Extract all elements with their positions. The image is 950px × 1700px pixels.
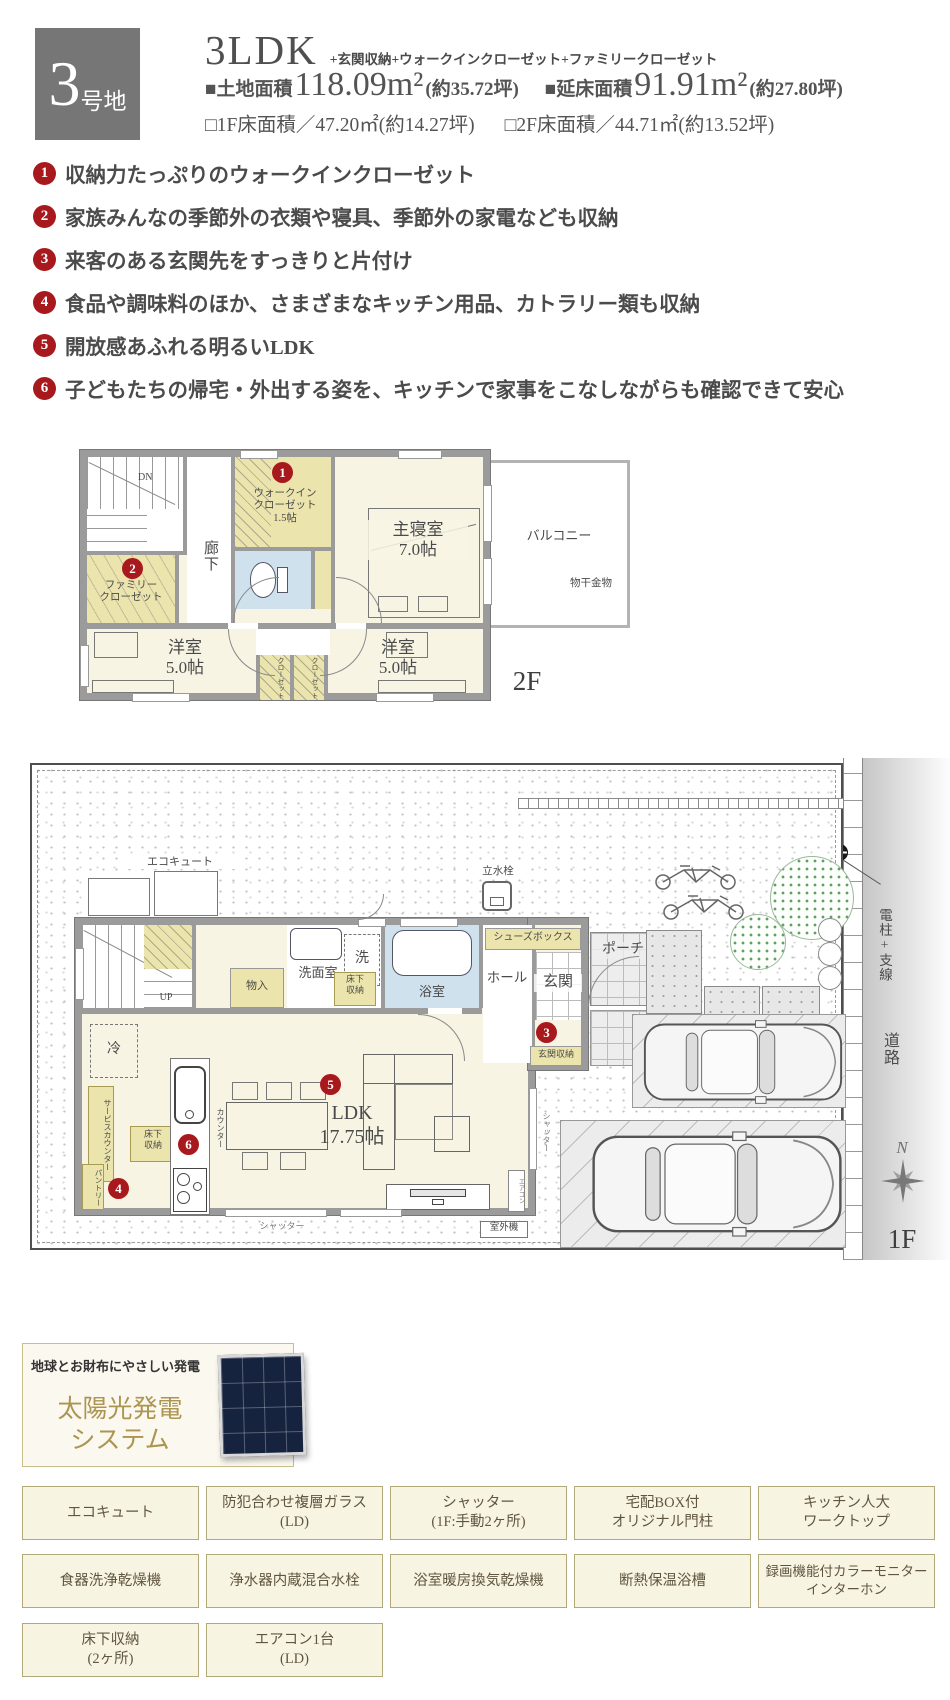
entrance-storage-label: 玄関収納 [530,1049,582,1060]
equipment-row-2: 食器洗浄乾燥機 浄水器内蔵混合水栓 浴室暖房換気乾燥機 断熱保温浴槽 録画機能付… [22,1554,935,1608]
stair-treads [87,509,147,555]
window [240,450,278,459]
porch-label: ポーチ [592,942,654,959]
feature-text: 収納力たっぷりのウォークインクローゼット [65,158,475,188]
fence [518,798,843,809]
window [376,693,434,702]
equipment-row-3: 床下収納 (2ヶ所) エアコン1台 (LD) [22,1623,383,1677]
feature-badge-2: 2 [33,205,56,228]
equipment-box: 防犯合わせ複層ガラス (LD) [206,1486,383,1540]
wall [183,457,187,555]
lot-number: 3 [49,52,81,116]
planter [646,930,702,1014]
feature-item: 6 子どもたちの帰宅・外出する姿を、キッチンで家事をこなしながらも確認できて安心 [33,373,933,403]
hallway-label: 廊下 [194,528,218,584]
feature-item: 4 食品や調味料のほか、さまざまなキッチン用品、カトラリー類も収納 [33,287,933,317]
desk [94,632,138,658]
car-icon [642,1020,844,1104]
feature-list: 1 収納力たっぷりのウォークインクローゼット 2 家族みんなの季節外の衣類や寝具… [33,158,933,403]
shutter-bottom-label: シャッター [250,1221,314,1232]
bath-label: 浴室 [408,984,456,999]
desk [386,632,428,658]
curb [843,758,863,1260]
utility-pole-label: 電柱+支線 [868,884,892,1006]
dining-chair [280,1152,306,1170]
stone [818,966,842,990]
wall [192,925,196,1008]
sofa [363,1054,395,1170]
floor-plan-1f: 電柱+支線 道路 N 1F エコキュート 立水栓 UP 物入 洗面室 洗 床下 … [30,758,950,1263]
feature-text: 家族みんなの季節外の衣類や寝具、季節外の家電なども収納 [65,201,619,231]
underfloor-storage-1-label: 床下 収納 [334,974,376,995]
feature-text: 来客のある玄関先をすっきりと片付け [65,244,413,274]
balcony-label: バルコニー [498,528,620,543]
floor-label-2f: 2F [495,666,559,698]
stove-burner [193,1182,202,1191]
dining-chair [232,1082,258,1100]
solar-title: 太陽光発電 システム [27,1394,213,1457]
floor1-area: □1F床面積／47.20㎡(約14.27坪) [205,108,475,137]
wall [87,551,183,555]
washer-label: 洗 [346,951,378,968]
equipment-row-1: エコキュート 防犯合わせ複層ガラス (LD) シャッター (1F:手動2ヶ所) … [22,1486,935,1540]
feature-badge-6: 6 [33,377,56,400]
bed-pillow [418,596,448,612]
compass-n-label: N [886,1138,918,1158]
feature-item: 5 開放感あふれる明るいLDK [33,330,933,360]
window [225,1209,327,1217]
land-area-tsubo: (約35.72坪) [425,74,518,101]
stone [818,942,842,966]
window [75,948,84,1000]
stove-burner [177,1191,190,1204]
stairs-dn-label: DN [138,472,178,484]
ecocute-unit [88,878,150,916]
badge-3: 3 [536,1022,557,1043]
total-area-value: 91.91m² [634,66,747,104]
floor-label-1f: 1F [870,1224,934,1256]
aircon-label: エアコン [509,1171,524,1211]
shoebox-label: シューズボックス [485,932,581,944]
ecocute-unit [154,871,218,916]
sink-vanity-icon [290,928,342,960]
car-icon [590,1128,844,1240]
ecocute-label: エコキュート [122,856,238,869]
window [400,918,458,927]
room-balcony [488,460,630,628]
toilet-niche [315,551,331,609]
land-area-value: 118.09m² [294,66,423,104]
bed-partial [378,680,466,693]
feature-badge-3: 3 [33,248,56,271]
plan-extras: +玄関収納+ウォークインクローゼット+ファミリークローゼット [330,48,718,68]
total-area-label: ■延床面積 [545,74,632,101]
west-room-left-label: 洋室 5.0帖 [135,638,235,678]
equipment-box: 断熱保温浴槽 [574,1554,751,1608]
feature-badge-4: 4 [33,291,56,314]
feature-text: 子どもたちの帰宅・外出する姿を、キッチンで家事をこなしながらも確認できて安心 [65,373,844,403]
bathtub-icon [392,930,472,976]
pantry-label: パントリー [84,1166,102,1209]
tv-board [386,1184,490,1210]
bed-pillow [378,596,408,612]
floor-plan-2f: バルコニー 物干金物 DN 廊下 1 ウォークイン クローゼット 1.5帖 主寝… [80,450,645,708]
equipment-box: シャッター (1F:手動2ヶ所) [390,1486,567,1540]
dining-chair [242,1152,268,1170]
header-area-row: ■土地面積 118.09m² (約35.72坪) ■延床面積 91.91m² (… [205,66,843,104]
land-area-label: ■土地面積 [205,74,292,101]
feature-text: 食品や調味料のほか、さまざまなキッチン用品、カトラリー類も収納 [65,287,700,317]
badge-1: 1 [272,462,293,483]
lot-suffix: 号地 [81,82,127,116]
bicycle-icon [658,892,754,922]
stone [818,918,842,942]
wall [82,1008,482,1014]
storage-small-label: 物入 [230,980,284,993]
badge-4: 4 [108,1178,129,1199]
equipment-box: エアコン1台 (LD) [206,1623,383,1677]
feature-badge-5: 5 [33,334,56,357]
master-bedroom-label: 主寝室 7.0帖 [368,520,468,560]
dining-chair [266,1082,292,1100]
road-label: 道路 [872,1024,898,1074]
window [132,693,190,702]
tv-stand-icon [432,1199,444,1205]
total-area-tsubo: (約27.80坪) [749,74,842,101]
header-floor-row: □1F床面積／47.20㎡(約14.27坪) □2F床面積／44.71㎡(約13… [205,108,774,137]
counter-label: カウンター [211,1096,225,1160]
window [80,645,89,687]
bed-partial [92,680,174,693]
feature-item: 1 収納力たっぷりのウォークインクローゼット [33,158,933,188]
floor2-area: □2F床面積／44.71㎡(約13.52坪) [505,108,775,137]
kitchen-faucet [185,1110,194,1119]
tap-label: 立水栓 [468,866,528,878]
stairs-up-label: UP [144,992,188,1004]
shutter-right-label: シャッター [538,1096,551,1168]
bicycle-icon [650,862,746,892]
badge-2: 2 [122,558,143,579]
compass-icon [880,1158,926,1204]
feature-item: 2 家族みんなの季節外の衣類や寝具、季節外の家電なども収納 [33,201,933,231]
tv-icon [410,1189,466,1197]
badge-6: 6 [178,1134,199,1155]
equipment-box: 食器洗浄乾燥機 [22,1554,199,1608]
solar-panel-section: 地球とお財布にやさしい発電 太陽光発電 システム [22,1343,294,1467]
solar-panel-image [218,1353,307,1457]
wall [175,555,179,623]
window [398,450,442,459]
side-table [434,1116,470,1152]
feature-text: 開放感あふれる明るいLDK [65,330,314,360]
tap-icon-inner [490,897,504,906]
door-gap [428,1008,462,1014]
equipment-box: エコキュート [22,1486,199,1540]
equipment-box: 宅配BOX付 オリジナル門柱 [574,1486,751,1540]
closet-label: クローゼット [299,656,319,700]
hall-label: ホール [480,970,534,986]
equipment-box: 浄水器内蔵混合水栓 [206,1554,383,1608]
stair-treads [82,925,144,1008]
feature-item: 3 来客のある玄関先をすっきりと片付け [33,244,933,274]
lot-number-box: 3 号地 [35,28,140,140]
feature-badge-1: 1 [33,162,56,185]
stove-burner [177,1173,190,1186]
understair-storage [144,925,192,969]
window [483,558,492,605]
equipment-box: キッチン人大 ワークトップ [758,1486,935,1540]
window [340,1209,402,1217]
tap-icon [482,881,512,911]
walkin-closet-label: ウォークイン クローゼット 1.5帖 [238,488,332,525]
window [529,1088,537,1170]
equipment-box: 浴室暖房換気乾燥機 [390,1554,567,1608]
drying-hardware-label: 物干金物 [508,578,612,590]
window [483,485,492,542]
solar-catch-copy: 地球とお財布にやさしい発電 [31,1358,215,1376]
badge-5: 5 [320,1074,341,1095]
equipment-box: 録画機能付カラーモニター インターホン [758,1554,935,1608]
entrance-label: 玄関 [534,974,582,992]
equipment-box: 床下収納 (2ヶ所) [22,1623,199,1677]
family-closet-label: ファミリー クローゼット [88,580,174,605]
fridge-label: 冷 [90,1042,138,1059]
wall [331,457,335,623]
tree [730,914,786,970]
outdoor-unit-label: 室外機 [480,1223,528,1234]
